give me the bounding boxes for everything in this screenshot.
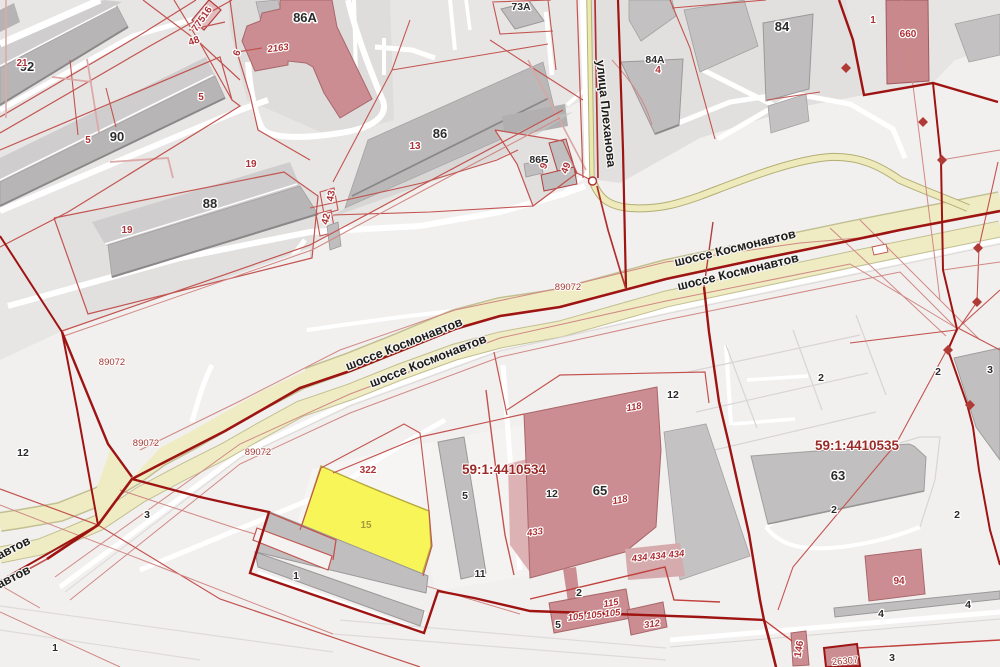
svg-text:4: 4 [878, 608, 884, 620]
svg-text:5: 5 [198, 92, 204, 103]
svg-text:86А: 86А [293, 10, 317, 25]
svg-text:73А: 73А [511, 1, 531, 13]
svg-text:89072: 89072 [245, 447, 271, 458]
svg-text:660: 660 [900, 29, 917, 40]
svg-text:5: 5 [85, 135, 91, 146]
svg-text:2: 2 [576, 587, 582, 599]
svg-text:89072: 89072 [99, 357, 125, 368]
svg-text:12: 12 [17, 447, 29, 459]
svg-text:86: 86 [433, 126, 447, 141]
svg-text:19: 19 [245, 159, 257, 170]
svg-text:3: 3 [987, 364, 993, 376]
svg-text:13: 13 [409, 141, 421, 152]
svg-text:312: 312 [643, 618, 661, 631]
svg-text:19: 19 [121, 225, 133, 236]
svg-text:5: 5 [462, 490, 468, 502]
svg-text:88: 88 [203, 196, 217, 211]
svg-text:21: 21 [16, 58, 28, 69]
svg-text:5: 5 [555, 619, 561, 631]
svg-text:59:1:4410534: 59:1:4410534 [462, 462, 547, 477]
svg-text:1: 1 [293, 570, 299, 582]
svg-text:11: 11 [474, 568, 485, 580]
svg-text:26307: 26307 [831, 655, 858, 667]
svg-text:3: 3 [889, 652, 895, 664]
svg-text:3: 3 [144, 509, 150, 521]
svg-text:89072: 89072 [133, 438, 159, 449]
svg-text:4: 4 [965, 599, 971, 611]
svg-text:12: 12 [546, 488, 558, 500]
svg-text:322: 322 [360, 465, 377, 476]
svg-text:2: 2 [831, 504, 837, 516]
svg-text:84: 84 [775, 19, 790, 34]
svg-text:2: 2 [935, 366, 941, 378]
svg-text:2: 2 [954, 509, 960, 521]
svg-text:89072: 89072 [555, 282, 581, 293]
svg-text:12: 12 [667, 389, 679, 401]
svg-text:59:1:4410535: 59:1:4410535 [815, 438, 900, 453]
svg-text:1: 1 [52, 642, 58, 654]
svg-text:63: 63 [831, 468, 845, 483]
svg-text:2: 2 [818, 372, 824, 384]
svg-text:90: 90 [110, 129, 124, 144]
svg-text:4: 4 [655, 65, 661, 76]
svg-text:15: 15 [360, 520, 372, 531]
svg-text:1: 1 [870, 15, 876, 26]
svg-text:65: 65 [593, 483, 607, 498]
svg-text:94: 94 [893, 576, 905, 587]
